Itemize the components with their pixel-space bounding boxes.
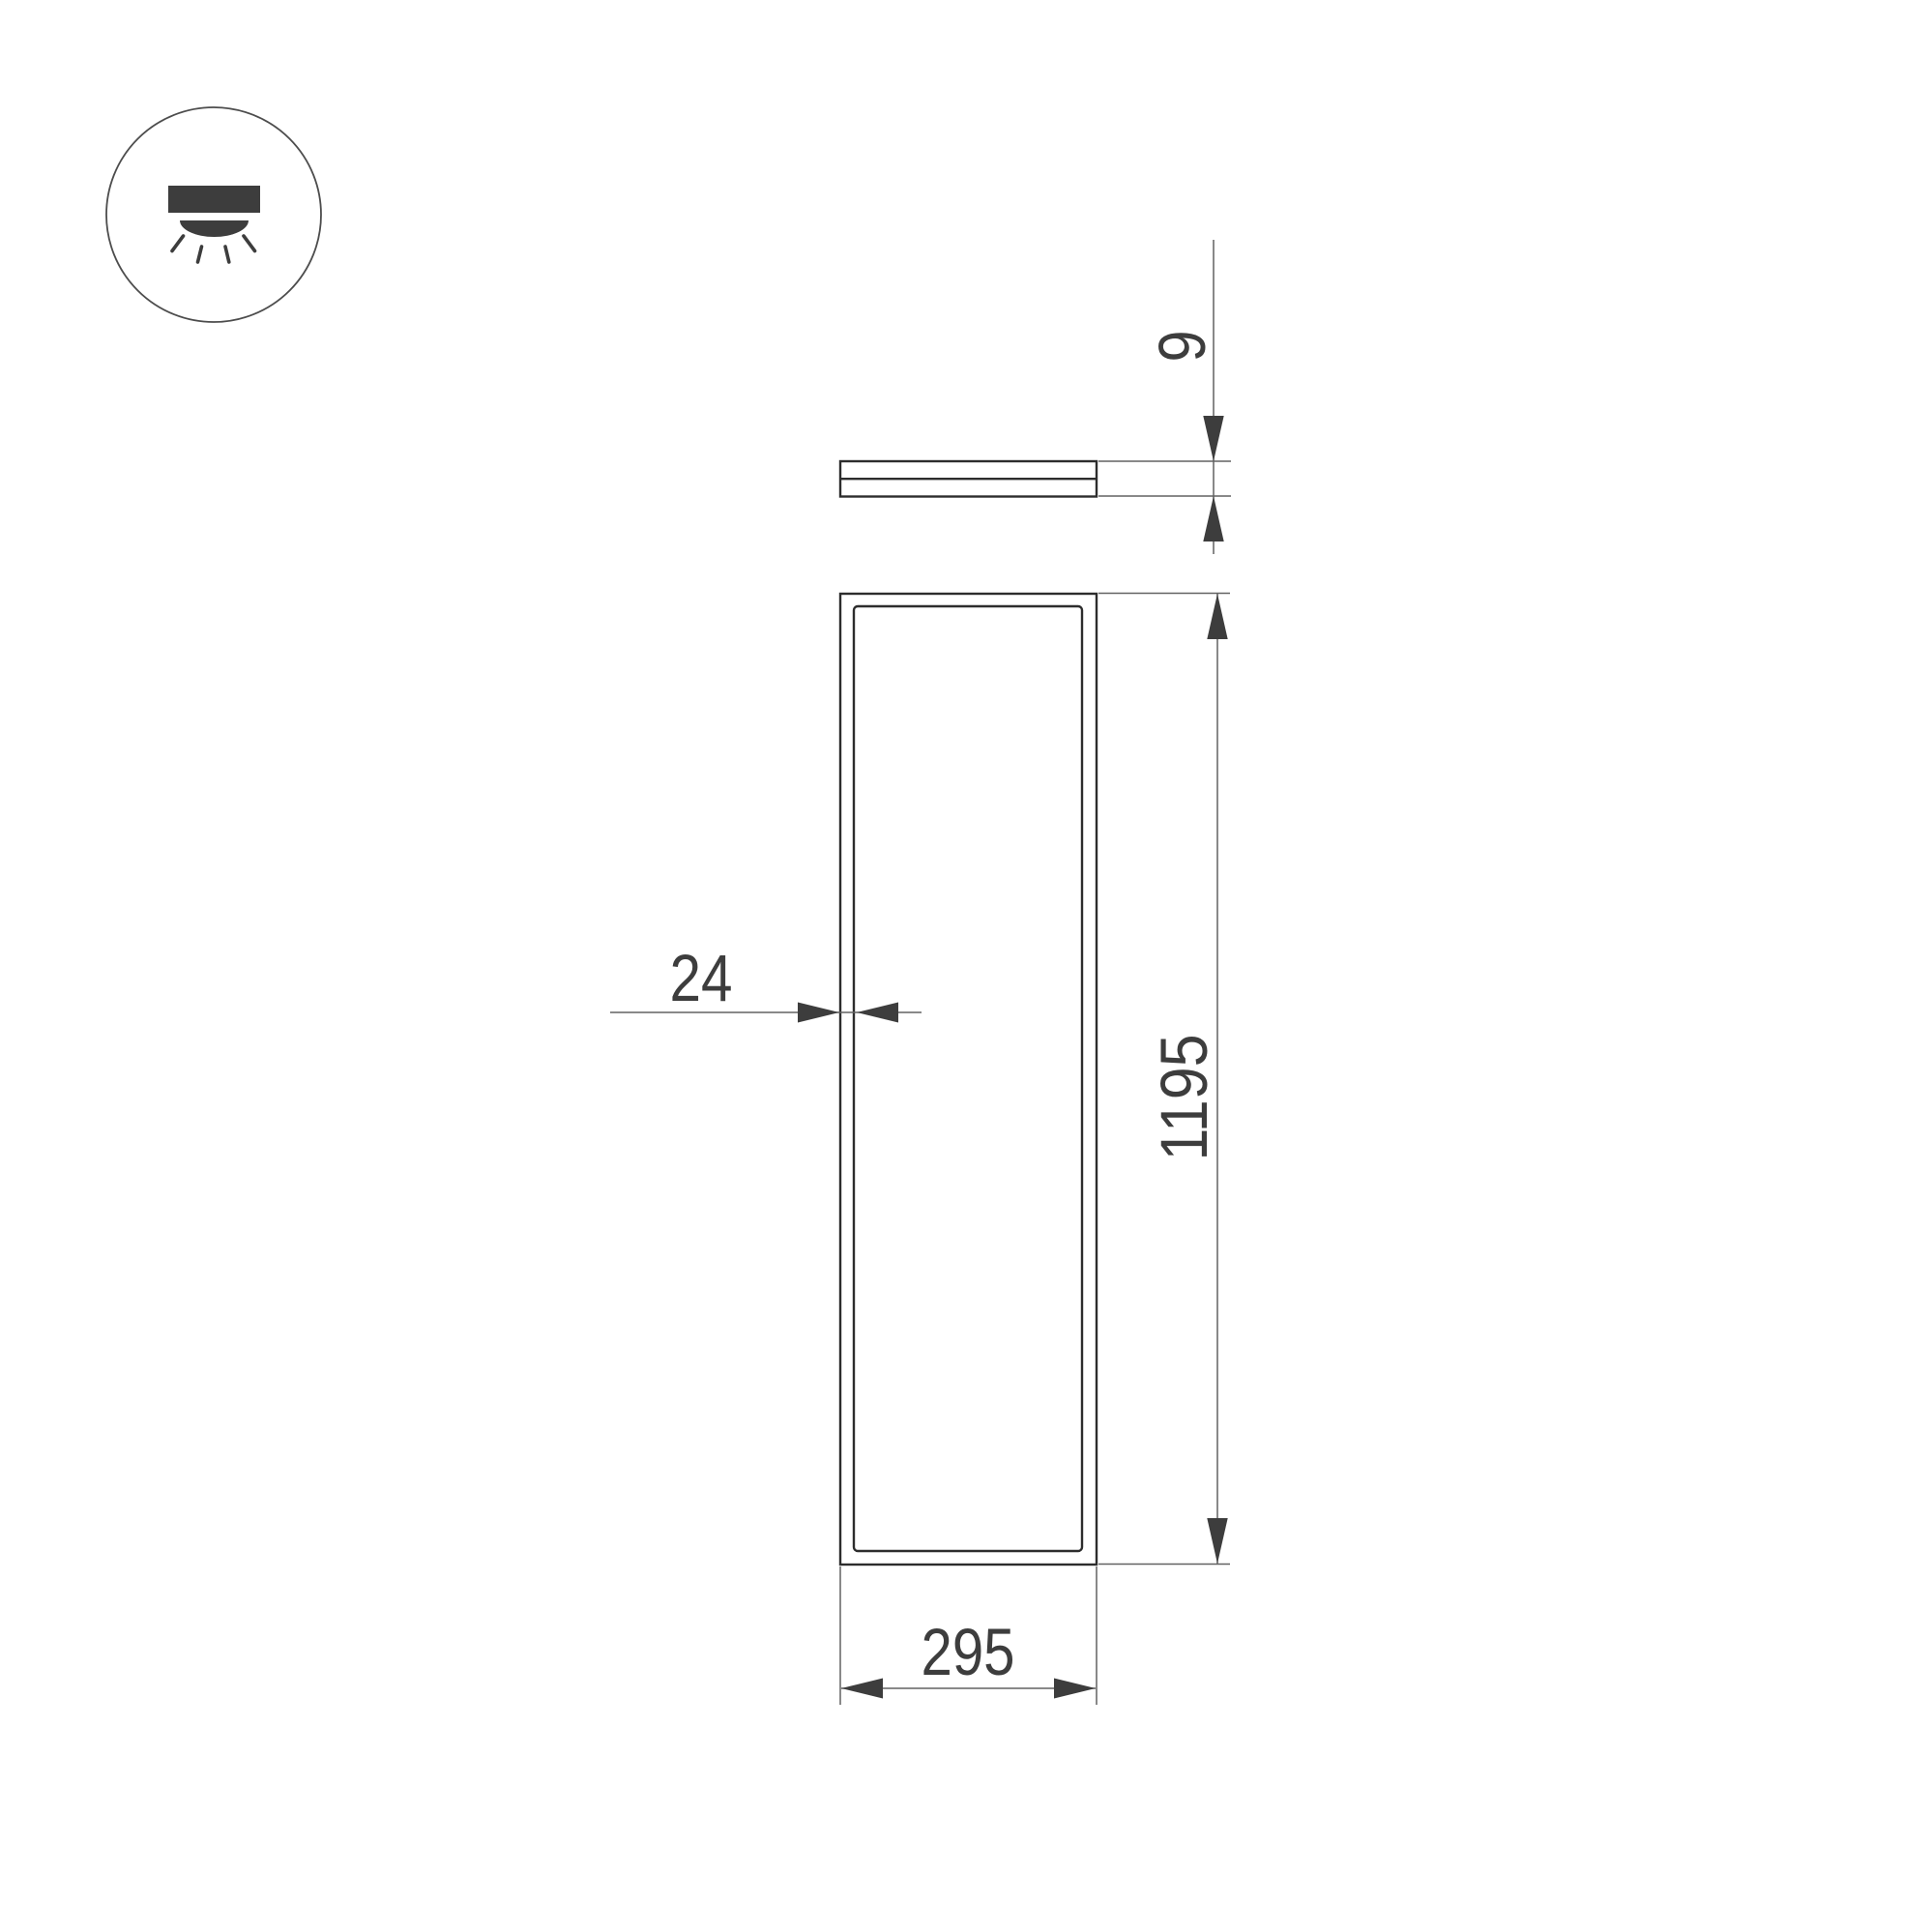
svg-text:24: 24 <box>670 941 733 1015</box>
svg-text:9: 9 <box>1145 331 1219 363</box>
svg-text:1195: 1195 <box>1147 1035 1221 1161</box>
svg-text:295: 295 <box>922 1615 1015 1689</box>
